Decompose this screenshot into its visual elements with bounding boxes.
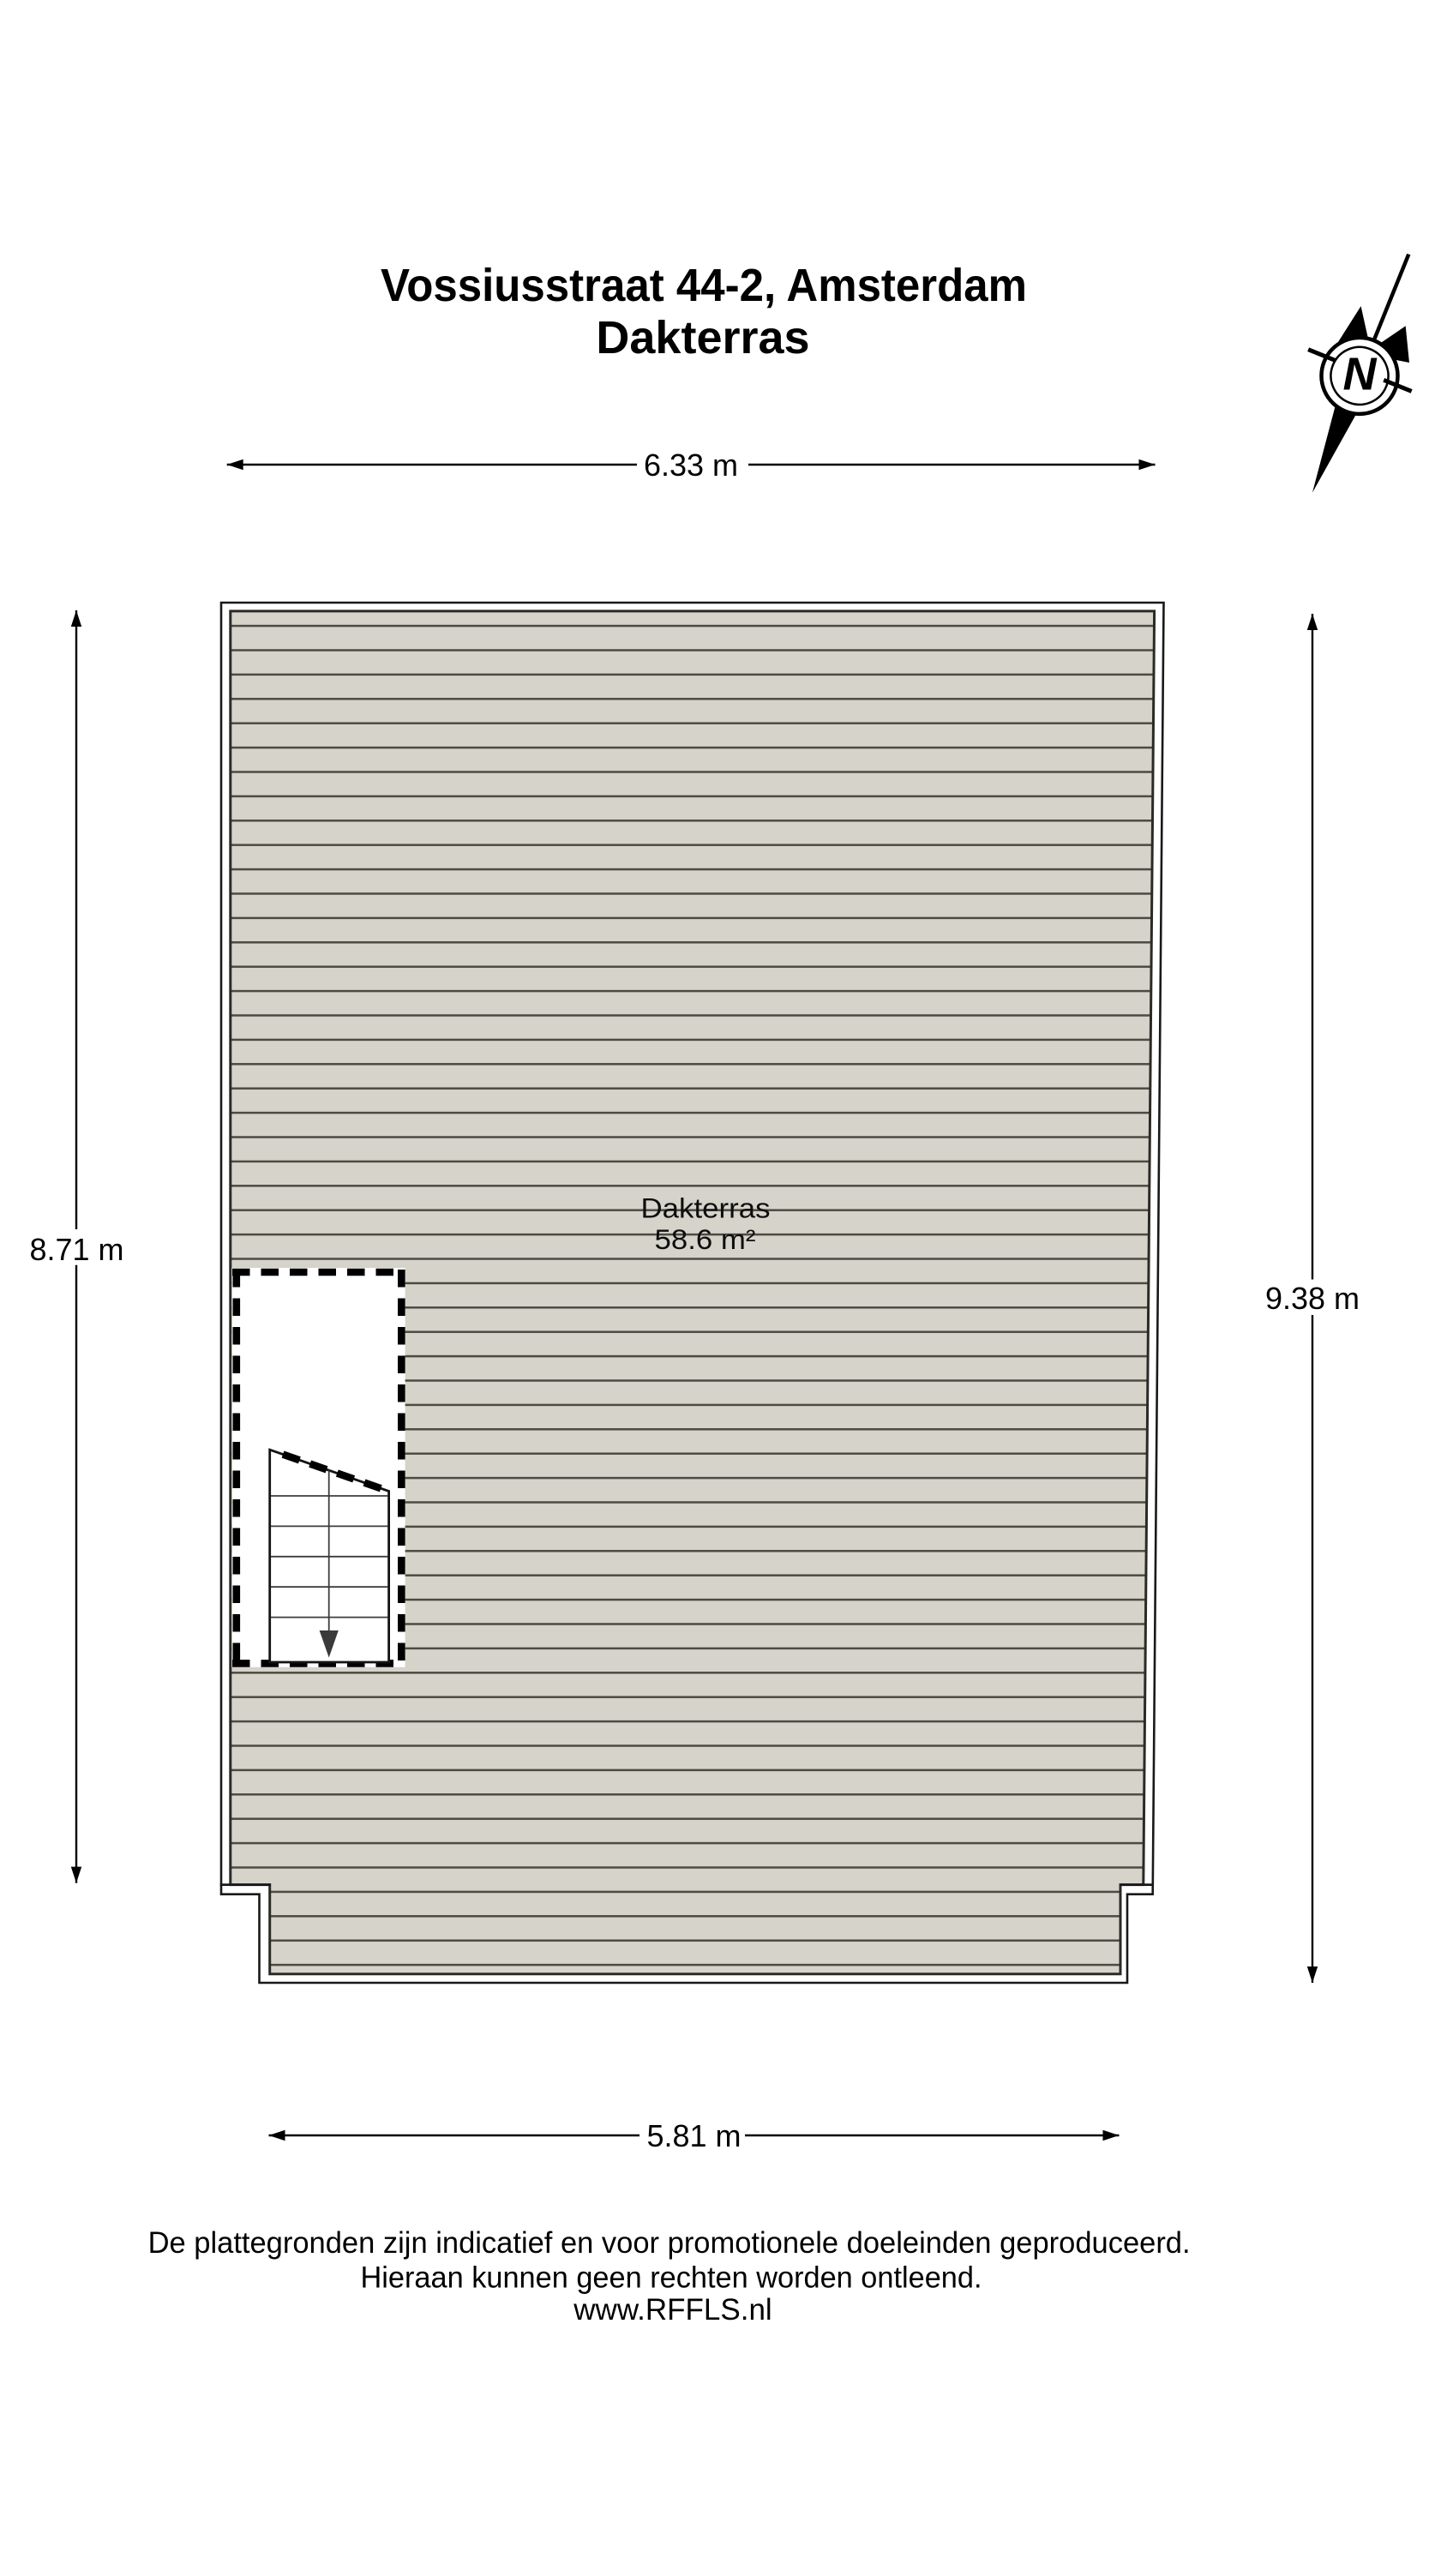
svg-text:Dakterras: Dakterras [641,1193,771,1224]
svg-text:De plattegronden zijn indicati: De plattegronden zijn indicatief en voor… [148,2226,1191,2260]
svg-text:Hieraan kunnen geen rechten wo: Hieraan kunnen geen rechten worden ontle… [361,2261,982,2295]
svg-text:6.33 m: 6.33 m [644,447,738,483]
svg-text:5.81 m: 5.81 m [646,2118,741,2153]
svg-text:8.71 m: 8.71 m [29,1232,123,1267]
svg-text:N: N [1343,349,1378,400]
svg-text:www.RFFLS.nl: www.RFFLS.nl [573,2293,772,2327]
svg-text:Vossiusstraat 44-2, Amsterdam: Vossiusstraat 44-2, Amsterdam [381,260,1027,311]
svg-text:9.38 m: 9.38 m [1265,1281,1360,1316]
svg-text:58.6 m²: 58.6 m² [655,1224,756,1255]
svg-text:Dakterras: Dakterras [596,312,809,363]
